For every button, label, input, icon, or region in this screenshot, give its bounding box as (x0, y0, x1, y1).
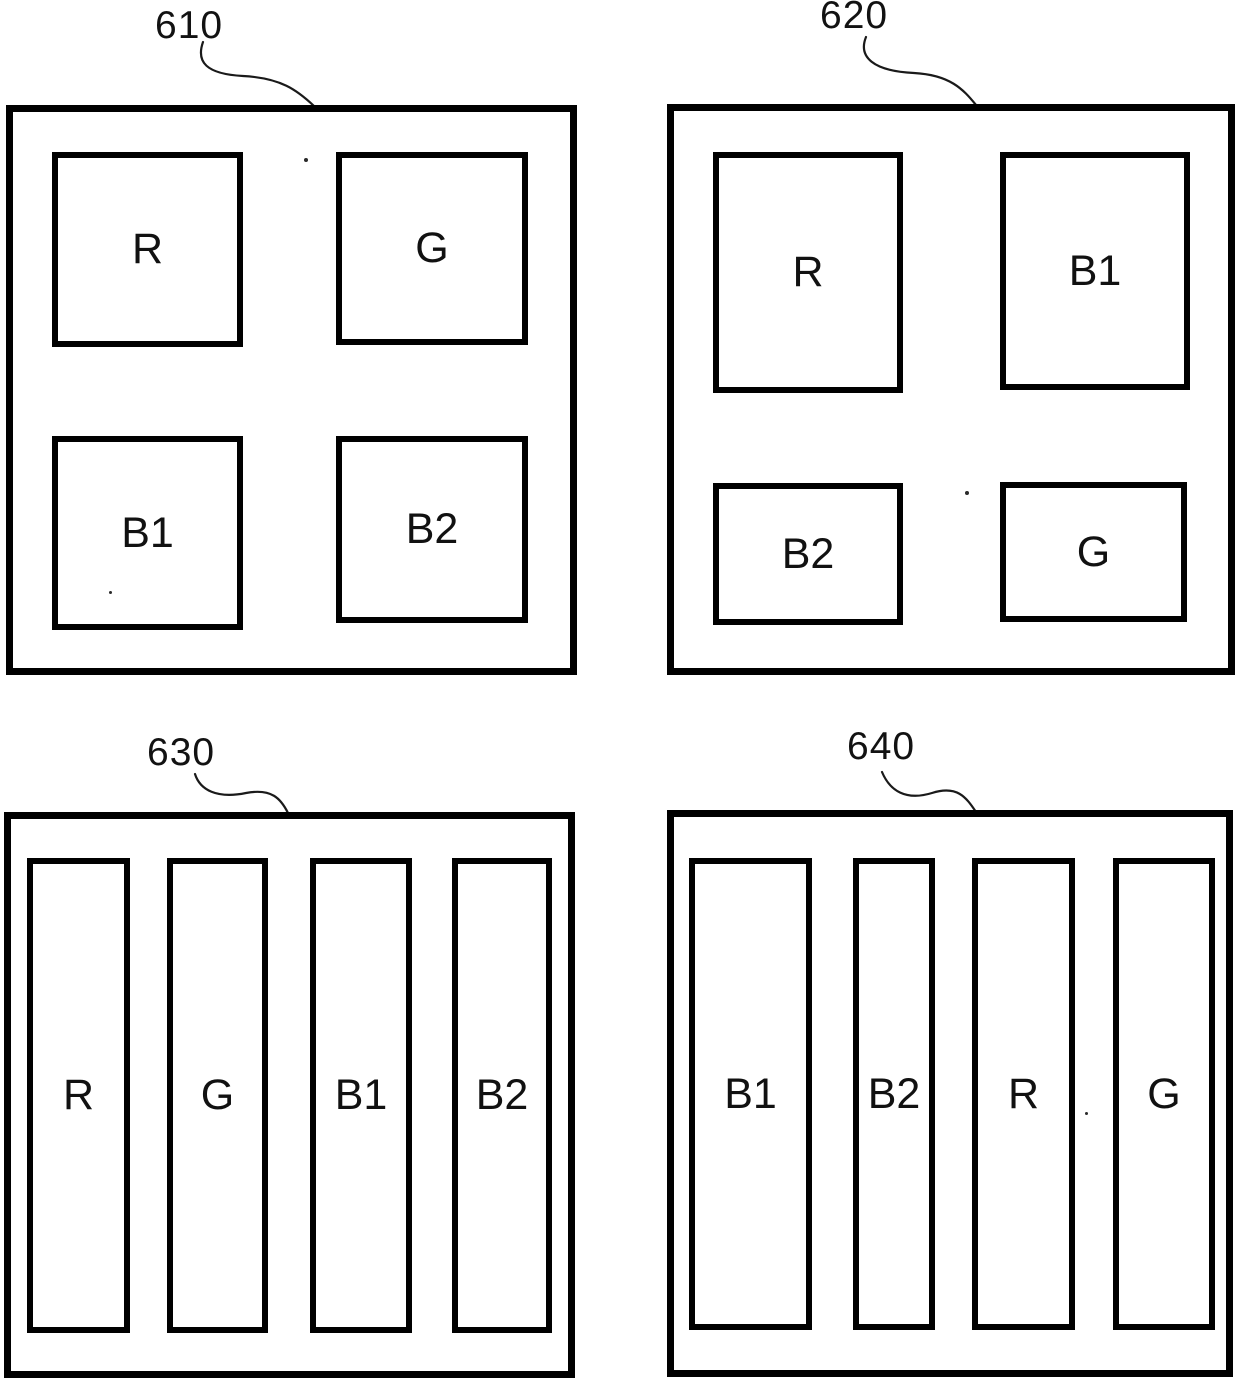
leader-line-610 (201, 42, 314, 106)
ref-label-620: 620 (820, 0, 888, 35)
subpixel-630-G: G (167, 858, 268, 1333)
subpixel-label: B2 (406, 508, 459, 551)
subpixel-640-R: R (972, 858, 1075, 1330)
subpixel-label: B1 (121, 512, 174, 555)
subpixel-630-B2: B2 (452, 858, 552, 1333)
figure-canvas: 610 620 630 640 R G B1 B2 R B1 B2 G R (0, 0, 1240, 1385)
pixel-group-640: B1 B2 R G (667, 810, 1233, 1377)
ref-label-610: 610 (155, 6, 223, 45)
subpixel-label: B1 (1069, 250, 1122, 293)
subpixel-label: G (201, 1074, 234, 1117)
leader-line-640 (882, 772, 976, 812)
subpixel-620-B2: B2 (713, 483, 903, 625)
ref-label-630: 630 (147, 733, 215, 772)
subpixel-640-G: G (1113, 858, 1215, 1330)
subpixel-label: B1 (335, 1074, 388, 1117)
scan-speck (109, 591, 112, 594)
subpixel-630-R: R (27, 858, 130, 1333)
scan-speck (965, 491, 969, 495)
subpixel-label: R (132, 228, 163, 271)
subpixel-630-B1: B1 (310, 858, 412, 1333)
subpixel-label: R (792, 251, 823, 294)
subpixel-640-B1: B1 (689, 858, 812, 1330)
subpixel-640-B2: B2 (853, 858, 935, 1330)
subpixel-610-B2: B2 (336, 436, 528, 623)
scan-speck (304, 158, 308, 162)
leader-line-620 (864, 37, 976, 105)
subpixel-label: G (1147, 1073, 1180, 1116)
leader-line-630 (195, 774, 288, 813)
subpixel-label: B2 (868, 1073, 921, 1116)
subpixel-label: B2 (782, 533, 835, 576)
pixel-group-630: R G B1 B2 (4, 812, 575, 1378)
subpixel-620-G: G (1000, 482, 1187, 622)
ref-label-640: 640 (847, 727, 915, 766)
subpixel-label: G (415, 227, 448, 270)
scan-speck (1085, 1112, 1088, 1115)
subpixel-label: B2 (476, 1074, 529, 1117)
subpixel-label: B1 (724, 1073, 777, 1116)
subpixel-620-R: R (713, 152, 903, 393)
subpixel-610-B1: B1 (52, 436, 243, 630)
subpixel-label: G (1077, 531, 1110, 574)
subpixel-label: R (63, 1074, 94, 1117)
subpixel-610-R: R (52, 152, 243, 347)
pixel-group-610: R G B1 B2 (6, 105, 577, 675)
subpixel-610-G: G (336, 152, 528, 345)
pixel-group-620: R B1 B2 G (667, 104, 1235, 675)
subpixel-620-B1: B1 (1000, 152, 1190, 390)
subpixel-label: R (1008, 1073, 1039, 1116)
